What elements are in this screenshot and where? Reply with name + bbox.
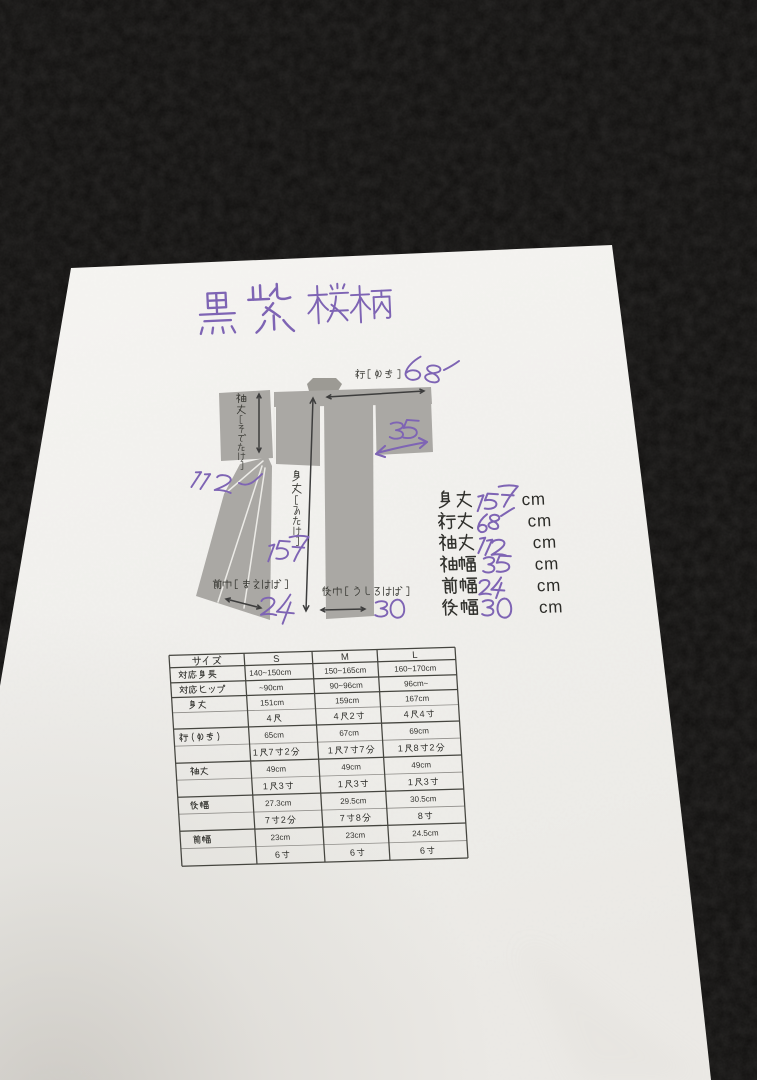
svg-text:27.3cm: 27.3cm (265, 798, 292, 808)
svg-text:7: 7 (265, 815, 271, 825)
svg-text:67cm: 67cm (339, 728, 359, 738)
svg-text:4: 4 (403, 709, 409, 719)
svg-text:8: 8 (417, 811, 423, 821)
svg-text:cm: cm (536, 576, 561, 596)
svg-text:8: 8 (413, 743, 419, 753)
svg-text:90~96cm: 90~96cm (329, 681, 363, 691)
svg-text:65cm: 65cm (264, 730, 284, 740)
svg-text:2: 2 (284, 747, 290, 757)
svg-text:159cm: 159cm (335, 696, 360, 706)
svg-text:24.5cm: 24.5cm (412, 828, 439, 838)
svg-text:2: 2 (429, 742, 435, 752)
svg-text:2: 2 (349, 711, 355, 721)
svg-text:7: 7 (359, 744, 365, 754)
svg-text:96cm~: 96cm~ (404, 679, 429, 689)
svg-text:L: L (412, 650, 418, 661)
svg-text:4: 4 (266, 713, 272, 723)
svg-text:49cm: 49cm (341, 762, 361, 772)
svg-text:23cm: 23cm (270, 833, 290, 843)
svg-text:69cm: 69cm (409, 726, 429, 736)
svg-text:cm: cm (538, 597, 563, 617)
svg-text:160~170cm: 160~170cm (394, 664, 437, 674)
svg-text:1: 1 (262, 781, 268, 791)
svg-text:4: 4 (419, 709, 425, 719)
svg-text:30.5cm: 30.5cm (410, 794, 437, 804)
svg-text:1: 1 (328, 745, 334, 755)
svg-text:cm: cm (534, 554, 559, 574)
svg-text:M: M (341, 652, 350, 663)
svg-text:151cm: 151cm (260, 698, 285, 708)
svg-text:cm: cm (521, 490, 546, 510)
svg-text:3: 3 (353, 779, 359, 789)
svg-text:23cm: 23cm (345, 831, 365, 841)
svg-text:~90cm: ~90cm (259, 683, 284, 693)
svg-text:3: 3 (278, 781, 284, 791)
svg-text:2: 2 (280, 815, 286, 825)
svg-text:6: 6 (275, 850, 281, 860)
svg-text:S: S (273, 654, 280, 665)
svg-text:29.5cm: 29.5cm (340, 796, 367, 806)
svg-text:8: 8 (355, 813, 361, 823)
svg-text:cm: cm (532, 533, 557, 553)
svg-text:1: 1 (253, 747, 259, 757)
svg-text:167cm: 167cm (405, 694, 430, 704)
svg-text:1: 1 (337, 779, 343, 789)
svg-text:6: 6 (350, 848, 356, 858)
svg-text:4: 4 (333, 711, 339, 721)
svg-text:7: 7 (340, 813, 346, 823)
svg-text:49cm: 49cm (266, 764, 286, 774)
svg-text:140~150cm: 140~150cm (249, 668, 292, 678)
svg-text:7: 7 (343, 745, 349, 755)
svg-text:6: 6 (420, 846, 426, 856)
svg-text:1: 1 (407, 777, 413, 787)
svg-text:49cm: 49cm (411, 760, 431, 770)
svg-text:3: 3 (423, 777, 429, 787)
svg-text:1: 1 (398, 743, 404, 753)
svg-text:cm: cm (527, 511, 552, 531)
svg-text:7: 7 (268, 747, 274, 757)
svg-text:150~165cm: 150~165cm (324, 666, 367, 676)
